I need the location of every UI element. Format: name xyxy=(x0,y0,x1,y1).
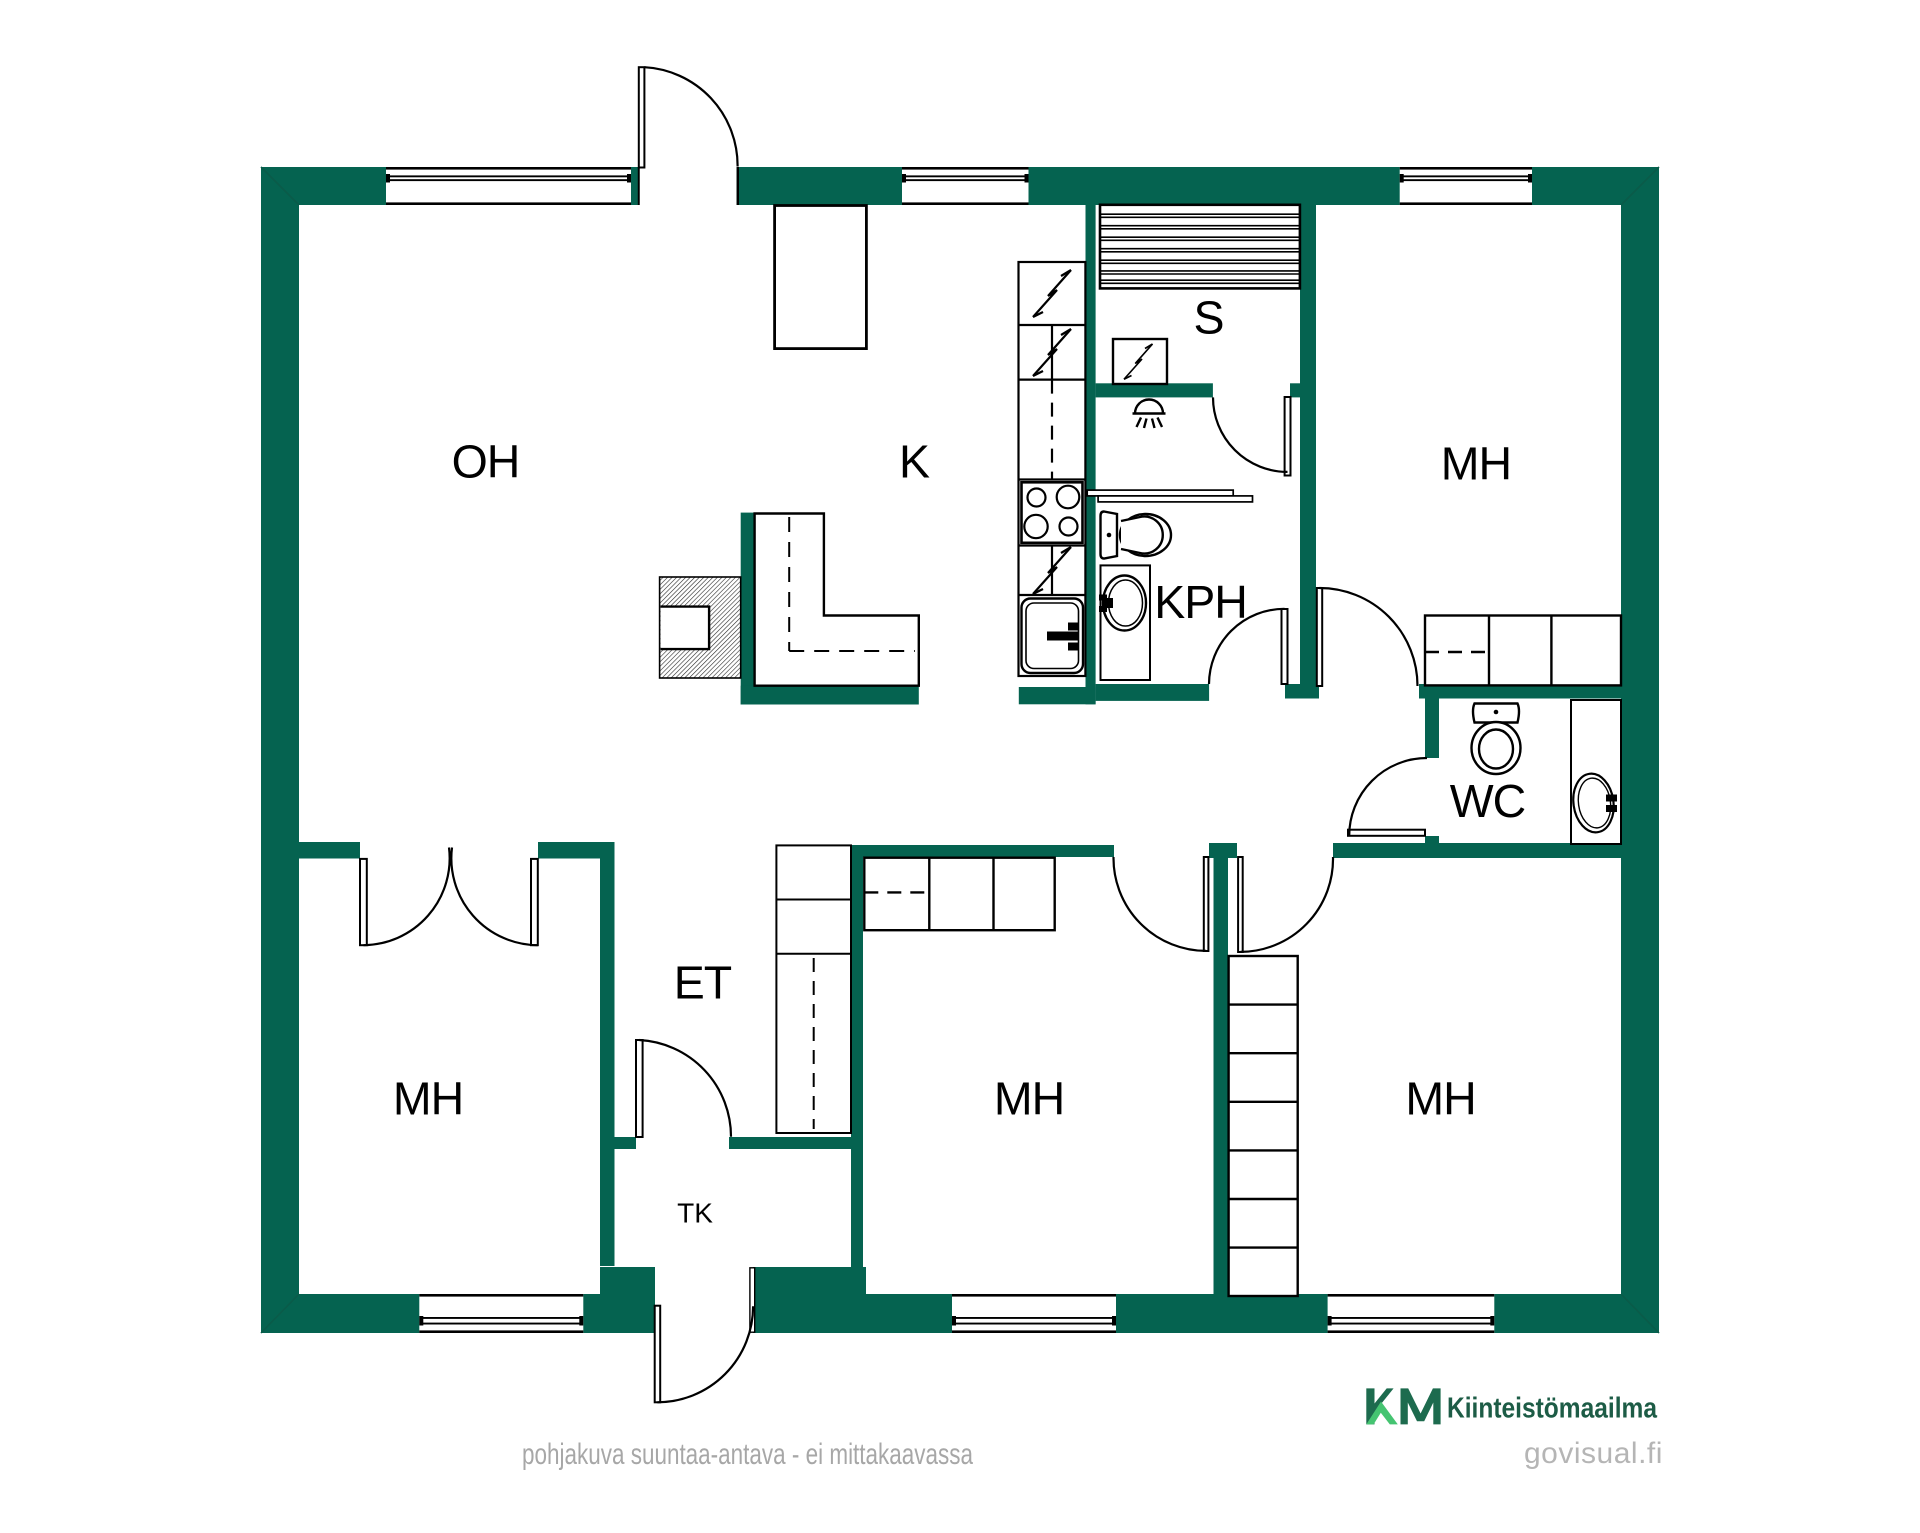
svg-text:pohjakuva suuntaa-antava - ei: pohjakuva suuntaa-antava - ei mittakaava… xyxy=(522,1438,973,1471)
svg-text:ET: ET xyxy=(674,957,732,1009)
svg-text:MH: MH xyxy=(393,1073,463,1125)
svg-text:OH: OH xyxy=(452,436,520,488)
svg-text:Kiinteistömaailma: Kiinteistömaailma xyxy=(1447,1393,1658,1425)
svg-text:MH: MH xyxy=(1441,437,1511,489)
svg-text:S: S xyxy=(1193,292,1223,344)
svg-text:MH: MH xyxy=(994,1073,1064,1125)
svg-text:KPH: KPH xyxy=(1154,576,1247,628)
svg-text:WC: WC xyxy=(1450,775,1525,827)
svg-text:TK: TK xyxy=(677,1198,713,1229)
svg-text:govisual.fi: govisual.fi xyxy=(1524,1437,1663,1470)
svg-text:MH: MH xyxy=(1405,1073,1475,1125)
svg-text:K: K xyxy=(899,436,930,488)
